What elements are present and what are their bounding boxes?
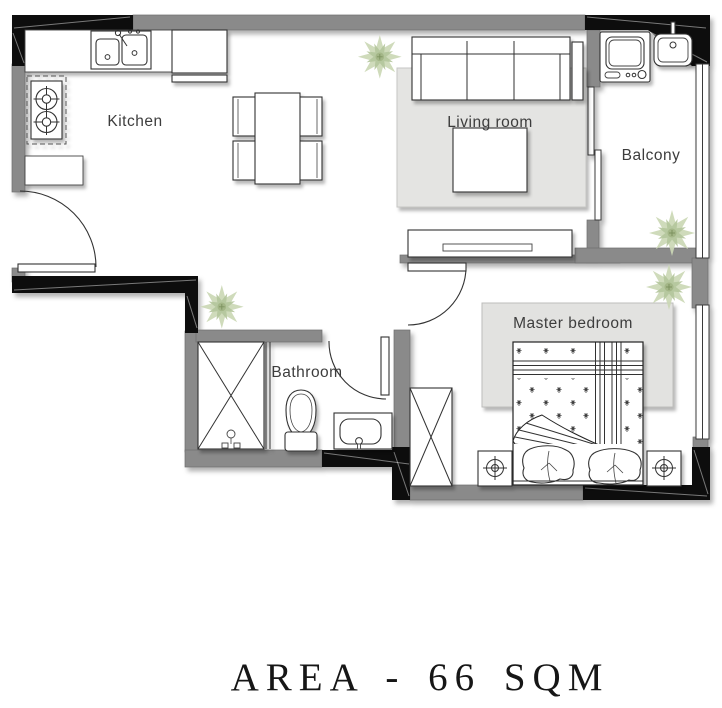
washing-machine: [600, 32, 650, 82]
wall-junction-v: [587, 220, 599, 252]
wall-bedroom-north-east: [575, 248, 697, 263]
sofa: [412, 37, 583, 100]
stove: [27, 76, 66, 144]
plant: [191, 276, 253, 338]
wall-bedroom-right-upper: [692, 258, 708, 308]
kitchen-counter-low: [25, 156, 83, 185]
double-bed: [513, 342, 643, 485]
wall-bathroom-bottom: [185, 450, 322, 467]
label-kitchen: Kitchen: [107, 113, 162, 130]
bathroom-sink: [334, 413, 392, 449]
label-living-room: Living room: [447, 114, 533, 131]
wall-bedroom-bottom: [410, 485, 583, 500]
label-master-bedroom: Master bedroom: [513, 315, 633, 332]
wall-bathroom-left: [185, 331, 198, 452]
floor-plan-drawing: Kitchen Living room Balcony Bathroom Mas…: [0, 0, 722, 640]
wall-top: [133, 15, 585, 30]
wall-bath-door-stub: [394, 330, 410, 450]
label-balcony: Balcony: [622, 147, 681, 164]
nightstand-left: [478, 451, 512, 486]
entry-door: [18, 191, 96, 272]
dining-table: [255, 93, 300, 184]
dining-chair: [233, 141, 256, 180]
area-title: AREA - 66 SQM: [190, 652, 650, 704]
tv-console: [408, 230, 572, 257]
wall-bathroom-top: [196, 330, 322, 342]
label-bathroom: Bathroom: [271, 364, 342, 381]
floor-plan: Kitchen Living room Balcony Bathroom Mas…: [0, 0, 722, 708]
dining-chair: [299, 97, 322, 136]
kitchen-fixtures: [25, 30, 227, 185]
balcony-window: [696, 64, 709, 258]
sliding-door: [588, 87, 601, 220]
coffee-table: [453, 128, 527, 192]
dining-set: [233, 93, 322, 184]
bathroom-fixtures: [198, 342, 392, 451]
bedroom-fixtures: [410, 342, 681, 486]
wall-balcony-divider-top: [587, 30, 600, 87]
bedroom-window: [696, 305, 709, 439]
shower: [198, 342, 270, 449]
toilet: [285, 390, 317, 451]
dining-chair: [233, 97, 256, 136]
wall-left: [12, 64, 25, 192]
bedroom-door: [408, 263, 466, 325]
wardrobe: [410, 388, 452, 486]
kitchen-sink: [91, 30, 151, 69]
nightstand-right: [647, 451, 681, 486]
dining-chair: [299, 141, 322, 180]
fridge-cabinet: [172, 30, 227, 82]
